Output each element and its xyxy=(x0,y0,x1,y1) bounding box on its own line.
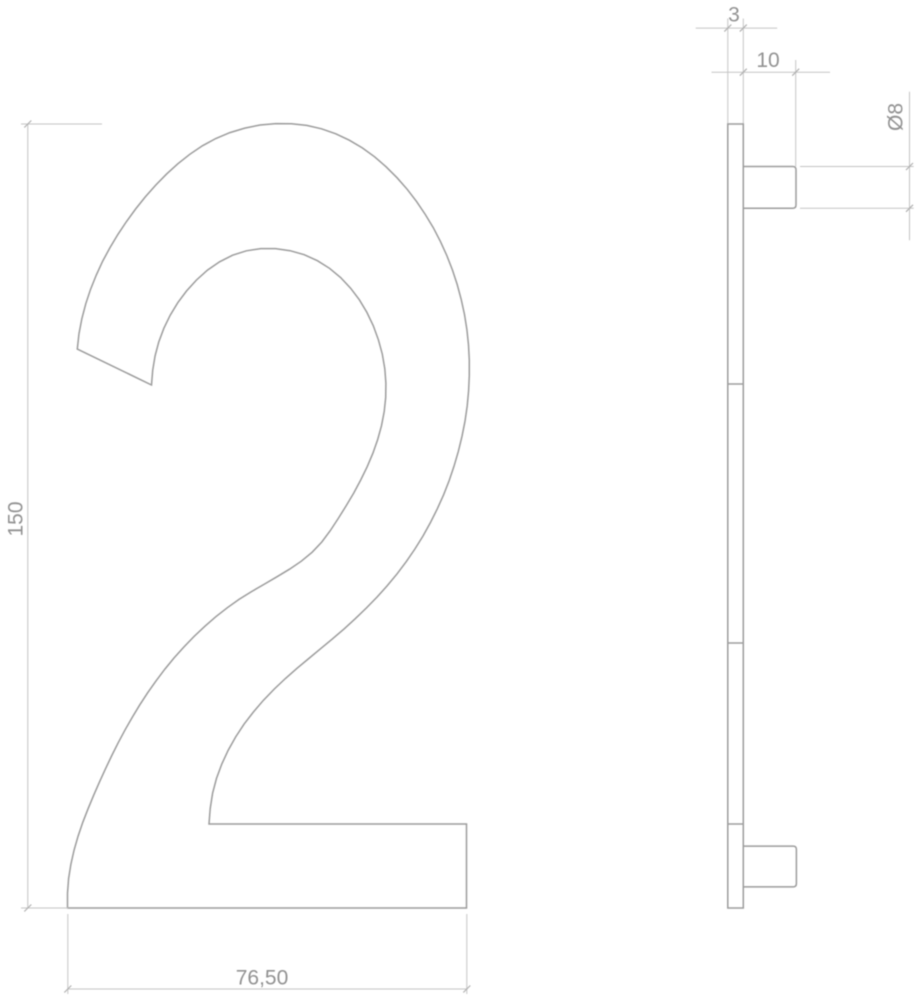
svg-text:150: 150 xyxy=(5,501,28,536)
svg-text:10: 10 xyxy=(756,49,779,72)
svg-text:Ø8: Ø8 xyxy=(885,103,908,131)
svg-text:3: 3 xyxy=(728,4,740,27)
svg-text:76,50: 76,50 xyxy=(236,967,289,990)
